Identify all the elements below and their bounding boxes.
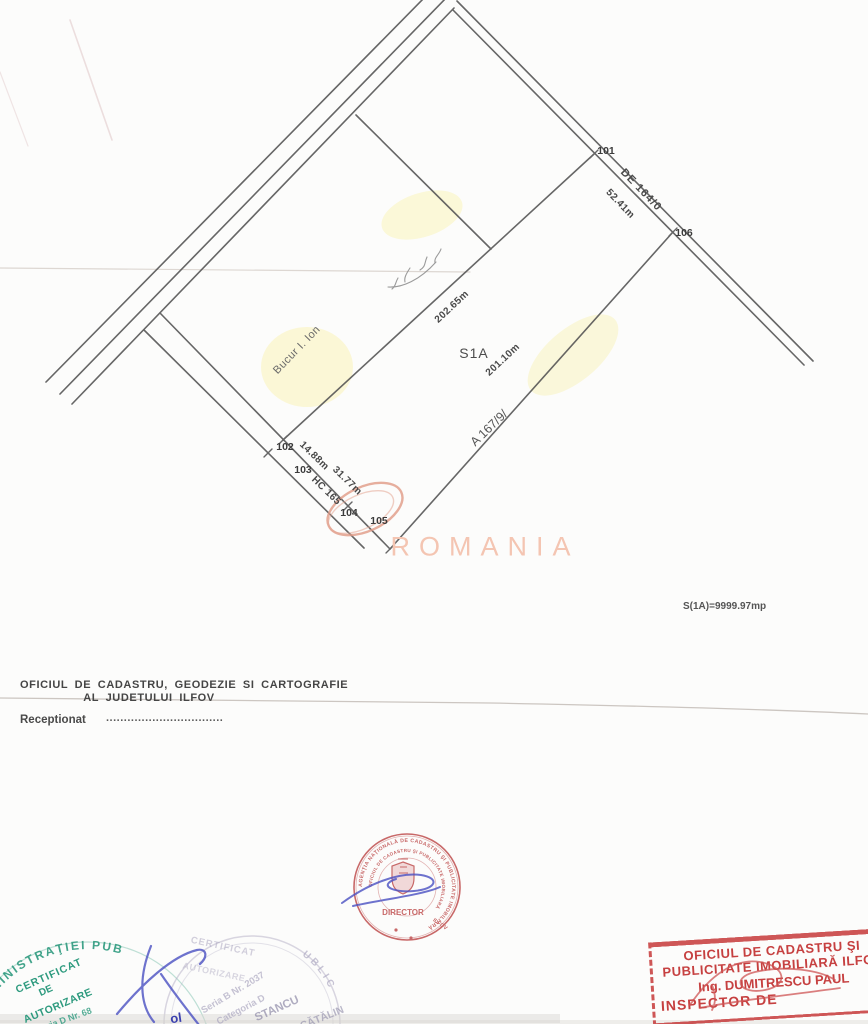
owner-label: Bucur I. Ion	[271, 323, 323, 376]
point-label-102: 102	[276, 441, 294, 453]
faded-stamp-line2: AUTORIZARE	[182, 960, 247, 983]
point-label-105: 105	[370, 515, 388, 527]
faded-stamp-line1: CERTIFICAT	[190, 935, 257, 959]
receptionat-dotted-line: .................................	[106, 712, 223, 724]
measurement-nw-side: 202.65m	[433, 289, 471, 326]
faded-stamp-name2: CĂTĂLIN	[298, 1004, 345, 1024]
red-rect-stamp: OFICIUL DE CADASTRU ŞI PUBLICITATE IMOBI…	[648, 928, 868, 1024]
parcel-code-label: S1A	[459, 345, 488, 361]
scanned-cadastral-plan: AGENŢIA NAŢIONALĂ DE CADASTRU ŞI PUBLICI…	[0, 0, 868, 1024]
measurement-road-front: 52.41m	[603, 187, 636, 221]
point-label-101: 101	[597, 145, 615, 157]
plan-labels-layer: 101 106 102 103 104 105 DE 164/0 52.41m …	[0, 0, 868, 1024]
area-note: S(1A)=9999.97mp	[683, 601, 766, 612]
measurement-se-side: 201.10m	[484, 342, 522, 379]
point-label-106: 106	[675, 227, 693, 239]
office-title-line1: OFICIUL DE CADASTRU, GEODEZIE SI CARTOGR…	[20, 679, 348, 691]
office-title-line2: AL JUDETULUI ILFOV	[20, 692, 278, 704]
point-label-103: 103	[294, 464, 312, 476]
parcel-number-label: A 167/9/	[468, 407, 511, 449]
signature-initials: ol	[169, 1010, 183, 1024]
romania-watermark: ROMANIA	[390, 532, 579, 563]
point-label-104: 104	[340, 507, 358, 519]
receptionat-label: Receptionat	[20, 714, 86, 726]
